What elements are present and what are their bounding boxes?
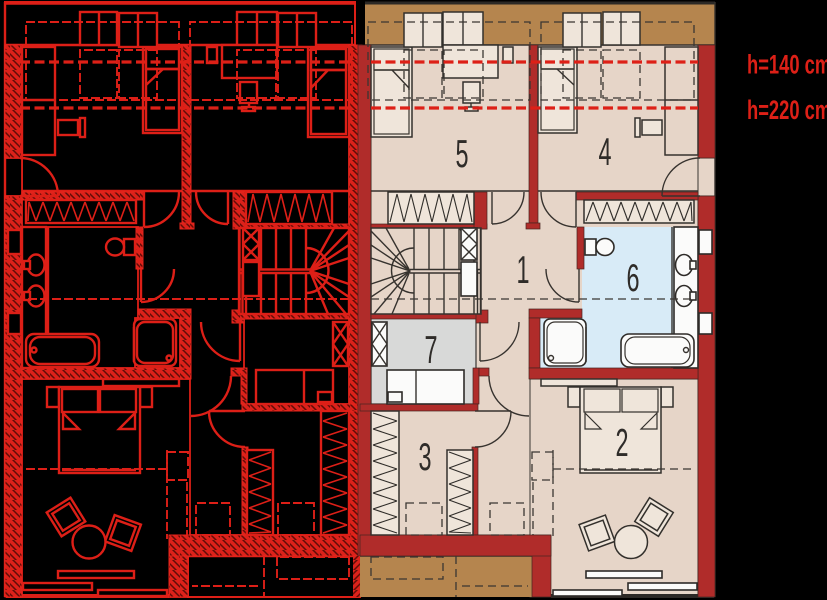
svg-text:h=140 cm: h=140 cm xyxy=(747,49,827,79)
svg-text:1: 1 xyxy=(516,248,529,292)
svg-text:4: 4 xyxy=(598,130,611,174)
svg-text:6: 6 xyxy=(626,256,639,300)
svg-text:2: 2 xyxy=(615,421,628,465)
svg-text:h=220 cm: h=220 cm xyxy=(747,94,827,124)
svg-text:5: 5 xyxy=(455,132,468,176)
svg-text:3: 3 xyxy=(418,435,431,479)
svg-text:7: 7 xyxy=(424,328,437,372)
